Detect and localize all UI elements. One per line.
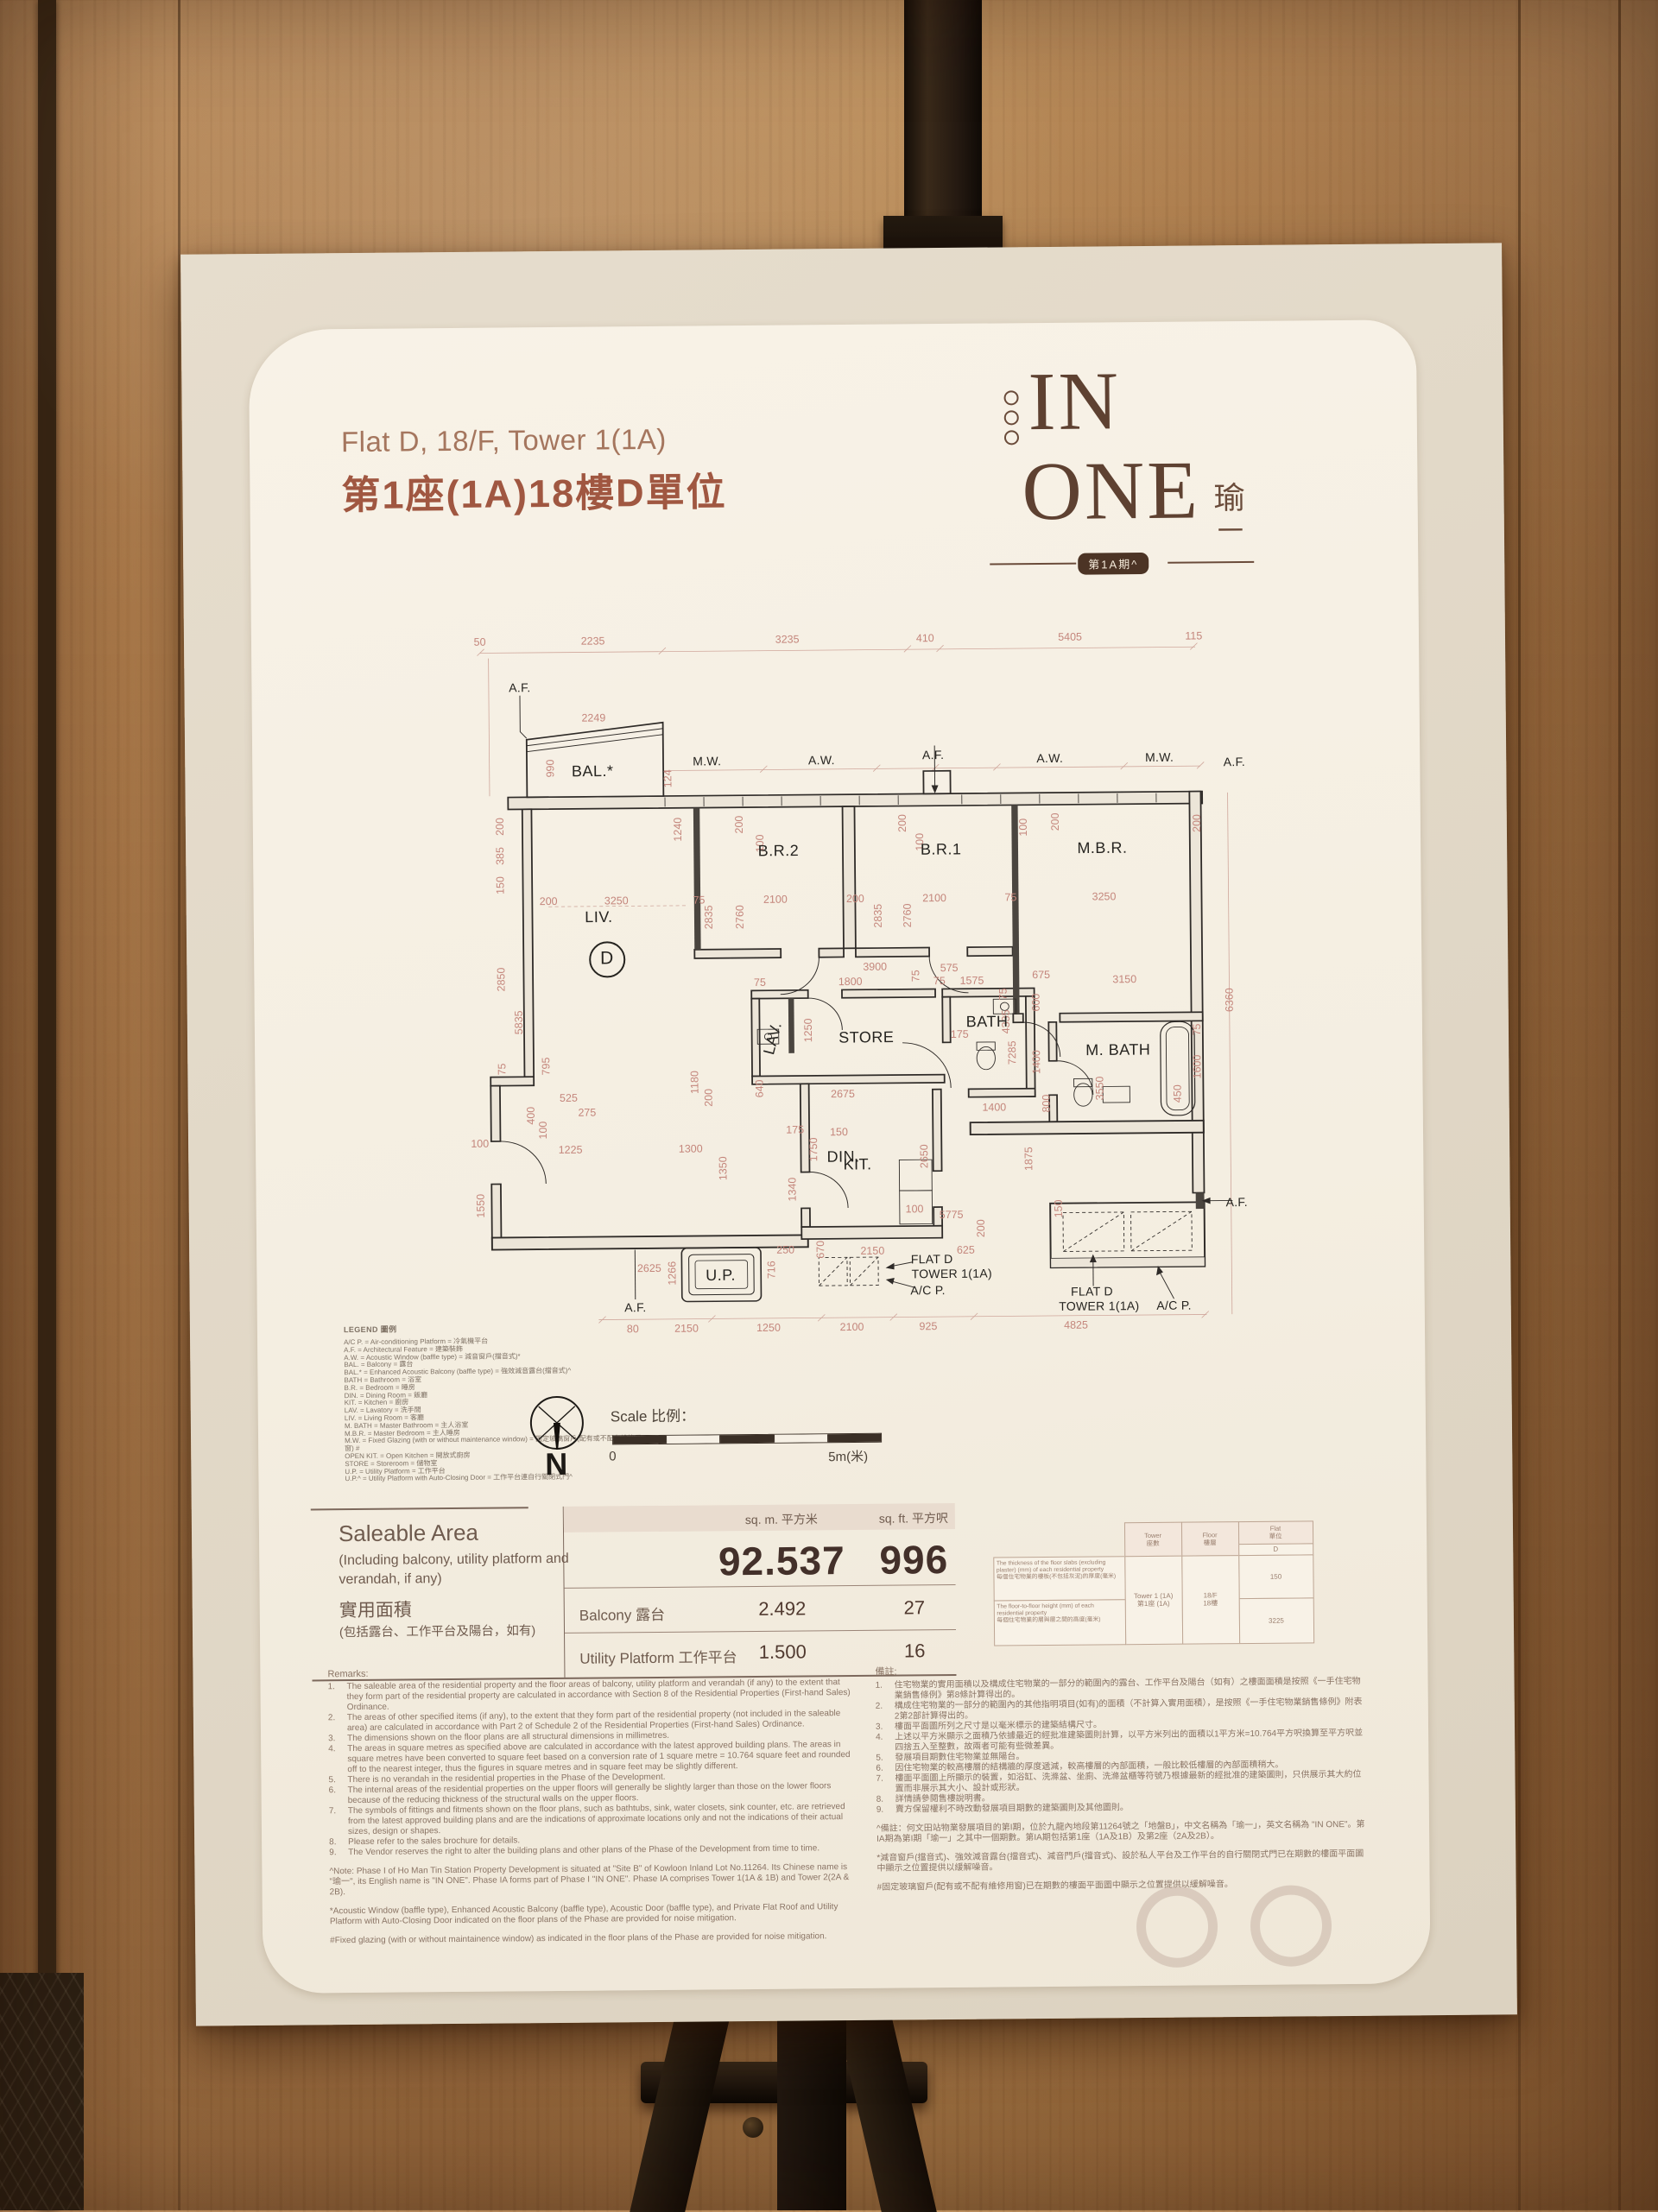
photo-scene: { "header": {"title_en": "Flat D, 18/F, … [0, 0, 1658, 2210]
plan-annotation: A.W. [1036, 751, 1063, 765]
poster-board: Flat D, 18/F, Tower 1(1A) 第1座(1A)18樓D單位 … [180, 243, 1517, 2026]
dimension-label: 1225 [559, 1144, 583, 1156]
room-label: LIV. [585, 907, 613, 926]
dimension-label: 5835 [512, 1011, 524, 1035]
remarks-zh-items: 1.住宅物業的實用面積以及構成住宅物業的一部分的範圍內的露台、工作平台及陽台（如… [876, 1677, 1365, 1816]
dimension-label: 2675 [831, 1088, 855, 1100]
remark-item: 4.The areas in square metres as specifie… [328, 1740, 853, 1775]
dimension-label: 150 [830, 1126, 848, 1138]
dimension-label: 5775 [940, 1209, 964, 1221]
remarks-en-notes: ^Note: Phase I of Ho Man Tin Station Pro… [329, 1862, 855, 1946]
dimension-label: 2150 [674, 1322, 699, 1334]
room-label: D [589, 941, 625, 977]
dimension-label: 1266 [666, 1261, 678, 1286]
dimension-label: 200 [1049, 813, 1061, 831]
dimension-label: 1575 [960, 975, 984, 987]
spec-desc-height: The floor-to-floor height (mm) of each r… [993, 1599, 1125, 1646]
remarks-zh-heading: 備註: [875, 1660, 1364, 1678]
logo-divider [990, 563, 1076, 566]
dimension-label: 2100 [840, 1321, 864, 1333]
dimension-label: 2625 [637, 1262, 661, 1274]
dimension-label: 100 [1016, 818, 1028, 837]
easel-knob [743, 2117, 763, 2138]
col-header-sqft: sq. ft. 平方呎 [879, 1509, 948, 1527]
wood-seam [1518, 0, 1521, 2210]
dimension-label: 200 [975, 1219, 987, 1237]
plan-annotation: A.W. [808, 753, 835, 767]
dimension-label: 3235 [775, 634, 800, 646]
watermark-ring-icon [1136, 1886, 1218, 1968]
dimension-label: 1875 [1022, 1147, 1035, 1171]
plan-annotation: TOWER 1(1A) [1059, 1299, 1139, 1313]
dimension-label: 3250 [604, 894, 629, 907]
balcony-sqft: 27 [903, 1596, 925, 1619]
logo-word-one: ONE [1022, 456, 1200, 526]
saleable-area-title: Saleable Area [339, 1520, 478, 1547]
spec-floor-value: 18/F18樓 [1181, 1555, 1240, 1645]
logo-cn-one: 一 [1218, 509, 1243, 547]
plan-annotation: TOWER 1(1A) [912, 1267, 992, 1281]
dimension-label: 2150 [860, 1244, 884, 1256]
dimension-label: 400 [524, 1107, 536, 1125]
dimension-label: 175 [786, 1123, 804, 1135]
dimension-label: 1750 [807, 1137, 820, 1161]
dimension-label: 2235 [581, 635, 605, 648]
remark-note: #Fixed glazing (with or without maintain… [330, 1931, 855, 1946]
legend-item: U.P.^ = Utility Platform with Auto-Closi… [345, 1473, 642, 1483]
saleable-area-title-zh: 實用面積 [339, 1596, 412, 1622]
plan-annotation: FLAT D [911, 1252, 953, 1266]
dimension-label: 115 [1185, 630, 1202, 642]
dimension-label: 124 [661, 769, 674, 787]
dimension-label: 3550 [1094, 1076, 1106, 1100]
dimension-label: 1400 [982, 1102, 1006, 1114]
saleable-area-sub1: (Including balcony, utility platform and [339, 1552, 569, 1569]
spec-desc-thickness: The thickness of the floor slabs (exclud… [993, 1556, 1125, 1601]
dimension-label: 275 [578, 1106, 596, 1118]
spec-height-value: 3225 [1238, 1597, 1313, 1644]
plan-annotation: A.F. [1224, 755, 1245, 768]
dimension-label: 5405 [1058, 631, 1082, 643]
spec-thickness-value: 150 [1238, 1554, 1313, 1599]
plan-annotation: A.F. [509, 680, 530, 694]
dimension-label: 625 [957, 1243, 975, 1255]
dimension-label: 1240 [672, 818, 684, 842]
dimension-label: 1600 [1192, 1055, 1204, 1079]
dimension-label: 75 [933, 975, 946, 987]
room-label: KIT. [843, 1156, 871, 1174]
wood-seam [178, 0, 180, 2210]
logo-word-in: IN [1028, 367, 1121, 436]
dimension-label: 200 [733, 816, 745, 834]
floorplan-card: Flat D, 18/F, Tower 1(1A) 第1座(1A)18樓D單位 … [249, 319, 1431, 1994]
wall-groove [38, 0, 56, 2210]
remark-item: 2.構成住宅物業的一部分的範圍內的其他指明項目(如有)的面積（不計算入實用面積）… [876, 1697, 1364, 1722]
remarks-en-heading: Remarks: [327, 1665, 852, 1679]
dimension-label: 50 [474, 636, 486, 648]
dimension-label: 450 [1172, 1085, 1184, 1103]
dimension-label: 75 [909, 970, 921, 982]
dimension-label: 7285 [1006, 1040, 1018, 1065]
dimension-label: 200 [896, 814, 908, 832]
plan-annotation: A.F. [624, 1300, 646, 1314]
dimension-label: 200 [846, 893, 864, 905]
scale-label: Scale 比例： [611, 1404, 695, 1426]
table-rule [311, 1507, 528, 1510]
room-label: M.B.R. [1077, 839, 1127, 858]
remarks-zh-notes: ^備註：何文田站物業發展項目的第I期，位於九龍內地段第11264號之「地盤B」，… [876, 1820, 1366, 1893]
plan-annotation: M.W. [1145, 750, 1174, 764]
dimension-label: 385 [494, 847, 506, 865]
dark-corner-panel [0, 1973, 84, 2210]
dimension-label: 100 [471, 1138, 489, 1150]
spec-col-tower: Tower座數 [1123, 1521, 1181, 1557]
dimension-label: 150 [494, 876, 506, 894]
remark-item: 4.上述以平方米顯示之面積乃依據最近的經批准建築圖則計算，以平方米列出的面積以1… [876, 1729, 1364, 1754]
easel-top-pole [904, 0, 982, 231]
phase-badge: 第1A期^ [1078, 553, 1149, 575]
dimension-label: 2760 [734, 905, 746, 929]
floor-plan: 5022353235410540511522492003851502850755… [381, 625, 1264, 1429]
plan-annotation: A.F. [922, 748, 944, 762]
dimension-label: 250 [776, 1244, 794, 1256]
dimension-label: 600 [1029, 994, 1041, 1012]
room-label: M. BATH [1085, 1041, 1150, 1060]
room-label: B.R.1 [921, 841, 962, 859]
dimension-label: 150 [1053, 1199, 1065, 1217]
dimension-label: 990 [544, 759, 556, 777]
utility-platform-sqm: 1.500 [759, 1640, 807, 1663]
remark-note: ^Note: Phase I of Ho Man Tin Station Pro… [329, 1862, 854, 1898]
room-label: STORE [838, 1028, 894, 1047]
utility-platform-label: Utility Platform 工作平台 [579, 1645, 737, 1668]
dimension-label: 716 [765, 1261, 777, 1280]
table-rule [565, 1629, 956, 1634]
logo-circle-icon [1004, 410, 1019, 425]
dimension-label: 800 [1041, 1094, 1053, 1112]
remark-item: 7.The symbols of fittings and fitments s… [329, 1802, 854, 1837]
utility-platform-sqft: 16 [904, 1640, 926, 1662]
scale-max: 5m(米) [828, 1447, 868, 1465]
plan-annotation: A/C P. [910, 1283, 946, 1297]
plan-annotation: FLAT D [1071, 1284, 1113, 1298]
dimension-label: 670 [814, 1241, 826, 1259]
easel-center-post [777, 2012, 846, 2210]
balcony-label: Balcony 露台 [579, 1602, 665, 1625]
plan-annotation: A/C P. [1156, 1299, 1192, 1312]
col-header-sqm: sq. m. 平方米 [745, 1510, 818, 1528]
wood-seam [1618, 0, 1621, 2210]
dimension-label: 2760 [902, 904, 914, 928]
dimension-label: 675 [1032, 969, 1050, 981]
logo-circle-icon [1004, 430, 1019, 445]
spec-tower-value: Tower 1 (1A)第1座 (1A) [1124, 1555, 1183, 1645]
plan-annotation: M.W. [693, 754, 721, 768]
dimension-label: 2650 [918, 1144, 930, 1168]
compass-north-label: N [545, 1446, 567, 1482]
easel-right-leg [835, 2012, 937, 2212]
remark-note: *減音窗戶(擋音式)、強效減音露台(擋音式)、減音門戶(擋音式)、設於私人平台及… [876, 1849, 1365, 1874]
spec-col-flat: Flat單位 [1237, 1520, 1313, 1545]
dimension-label: 1400 [1030, 1050, 1042, 1074]
dimension-label: 1340 [787, 1178, 799, 1202]
remarks-en: Remarks: 1.The saleable area of the resi… [327, 1665, 855, 1946]
dimension-label: 2835 [872, 904, 884, 928]
legend-block: LEGEND 圖例 A/C P. = Air-conditioning Plat… [344, 1321, 643, 1483]
room-label: BAL.* [572, 762, 614, 781]
dimension-label: 200 [1191, 814, 1203, 832]
logo-circle-icon [1003, 390, 1018, 405]
saleable-area-sub2: verandah, if any) [339, 1571, 441, 1588]
room-label: BATH [966, 1013, 1009, 1031]
dimension-label: 525 [560, 1092, 578, 1104]
dimension-label: 3900 [863, 961, 887, 973]
remarks-en-items: 1.The saleable area of the residential p… [328, 1678, 855, 1858]
dimension-label: 795 [540, 1057, 552, 1075]
scale-bar [612, 1433, 882, 1445]
dimension-label: 75 [754, 976, 766, 989]
dimension-label: 925 [919, 1320, 937, 1332]
dimension-label: 2100 [763, 894, 788, 906]
dimension-label: 1350 [717, 1157, 729, 1181]
remark-note: ^備註：何文田站物業發展項目的第I期，位於九龍內地段第11264號之「地盤B」，… [876, 1820, 1365, 1845]
plan-overlay: 5022353235410540511522492003851502850755… [381, 625, 1264, 1429]
dimension-label: 200 [540, 895, 558, 907]
dimension-label: 2249 [581, 711, 605, 724]
dimension-label: 75 [997, 988, 1009, 1000]
remarks-zh: 備註: 1.住宅物業的實用面積以及構成住宅物業的一部分的範圍內的露台、工作平台及… [875, 1660, 1365, 1893]
watermark-ring-icon [1250, 1885, 1332, 1967]
dimension-label: 3250 [1092, 890, 1117, 902]
dimension-label: 1180 [688, 1071, 700, 1094]
dimension-label: 75 [1191, 1023, 1203, 1035]
dimension-label: 575 [940, 961, 959, 973]
dimension-label: 4825 [1064, 1318, 1088, 1330]
dimension-label: 3150 [1112, 973, 1136, 985]
dimension-label: 1250 [802, 1018, 814, 1042]
total-sqft: 996 [879, 1536, 948, 1583]
spec-table: Tower座數 Floor樓層 Flat單位 D The thickness o… [993, 1520, 1313, 1645]
remark-note: *Acoustic Window (baffle type), Enhanced… [330, 1902, 855, 1927]
dimension-label: 1300 [679, 1143, 703, 1155]
spec-col-floor: Floor樓層 [1180, 1521, 1238, 1557]
room-label: LAV. [760, 1021, 786, 1057]
dimension-label: 200 [494, 818, 506, 836]
in-one-logo: IN ONE 瑜 一 第1A期^ [1002, 361, 1271, 588]
logo-divider [1168, 561, 1254, 564]
room-label: U.P. [706, 1267, 736, 1285]
flat-title-zh: 第1座(1A)18樓D單位 [341, 460, 727, 520]
dimension-label: 100 [537, 1122, 549, 1140]
dimension-label: 6360 [1224, 988, 1236, 1012]
compass-icon [528, 1394, 586, 1452]
dimension-label: 1550 [474, 1194, 486, 1218]
dimension-label: 200 [702, 1089, 714, 1107]
dimension-label: 640 [753, 1079, 765, 1097]
remark-item: 7.樓面平面圖上所顯示的裝置，如浴缸、洗滌盆、坐廁、洗滌盆櫃等符號乃根據最新的經… [876, 1770, 1364, 1795]
plan-annotation: A.F. [1225, 1195, 1247, 1209]
remark-item: 1.The saleable area of the residential p… [328, 1678, 853, 1713]
dimension-label: 410 [916, 633, 934, 645]
dimension-label: 75 [496, 1063, 508, 1075]
room-label: B.R.2 [758, 842, 800, 860]
dimension-label: 2835 [702, 906, 714, 930]
scale-zero: 0 [609, 1449, 616, 1463]
legend-items: A/C P. = Air-conditioning Platform = 冷氣機… [344, 1337, 642, 1483]
balcony-sqm: 2.492 [758, 1597, 806, 1620]
easel-left-leg [630, 2012, 731, 2212]
legend-heading: LEGEND 圖例 [344, 1321, 642, 1335]
dimension-label: 75 [1004, 891, 1016, 903]
dimension-label: 1800 [838, 976, 863, 988]
dimension-label: 2100 [922, 892, 946, 904]
saleable-area-sub-zh: (包括露台、工作平台及陽台，如有) [339, 1621, 535, 1640]
dimension-label: 1250 [756, 1322, 781, 1334]
table-rule [565, 1584, 956, 1589]
total-sqm: 92.537 [718, 1537, 845, 1584]
dimension-label: 100 [906, 1203, 924, 1215]
flat-title-en: Flat D, 18/F, Tower 1(1A) [341, 423, 667, 458]
dimension-label: 2850 [495, 967, 507, 991]
